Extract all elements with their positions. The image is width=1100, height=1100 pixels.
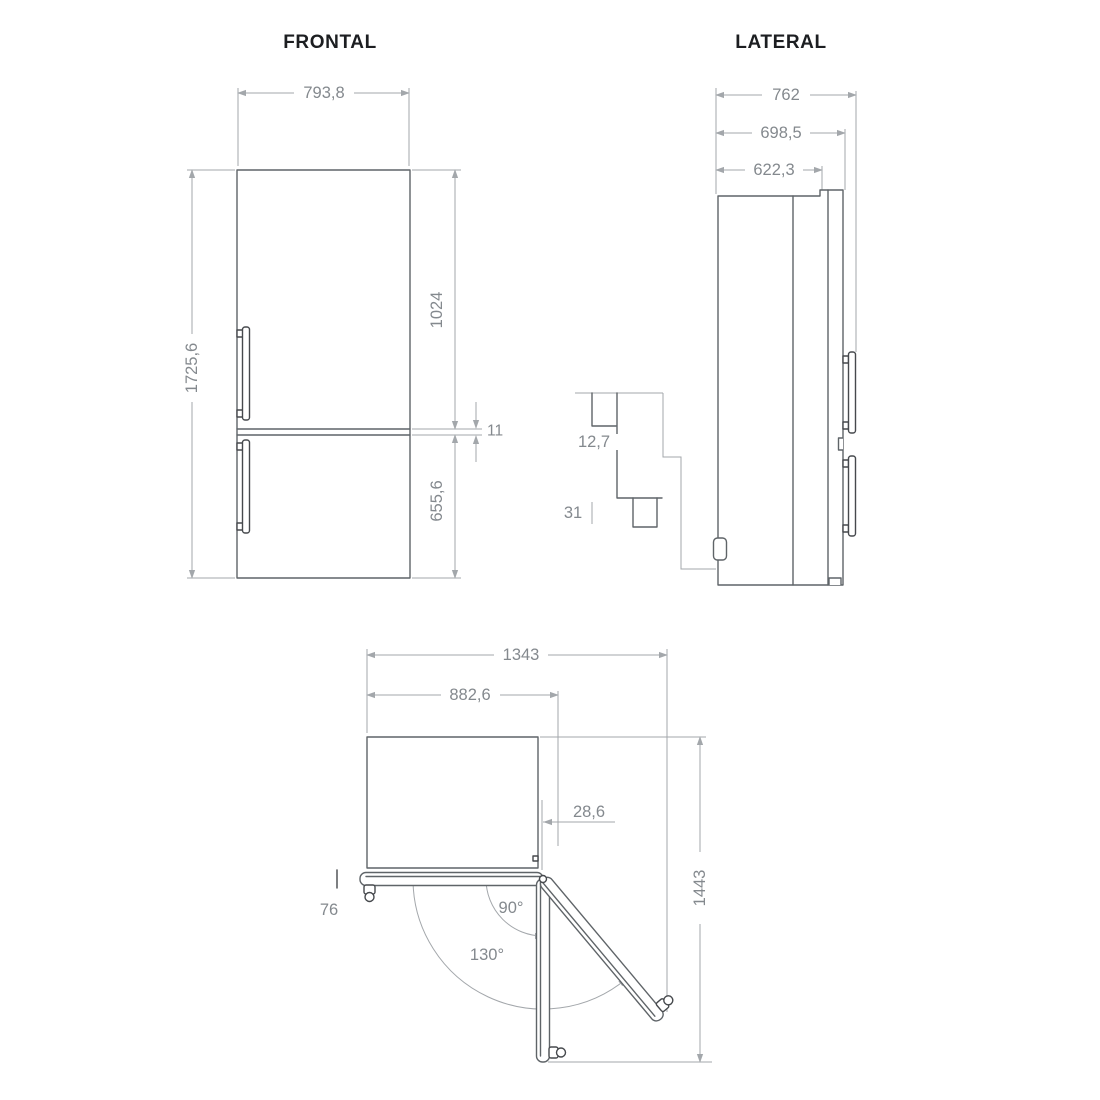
frontal-total-height-dimension: 1725,6 [183,170,235,578]
lateral-detail-callout: 12,7 31 [564,393,716,569]
top-hinge-mark [533,856,538,861]
top-body-width-label: 882,6 [449,686,490,704]
frontal-lower-height-dimension: 655,6 [412,435,482,578]
lateral-door-depth-label: 698,5 [760,124,801,142]
frontal-width-label: 793,8 [303,84,344,102]
lateral-overall-depth-label: 762 [772,86,800,104]
top-open-width-dimension: 1343 [367,646,667,664]
door-open-130 [538,865,678,1024]
lateral-bottom-notch [829,578,841,585]
lateral-cabinet-depth-label: 622,3 [753,161,794,179]
frontal-upper-height-label: 1024 [428,292,446,329]
lateral-cabinet-depth-dimension: 622,3 [716,161,822,190]
top-handle-clearance-label: 76 [320,901,338,919]
frontal-total-height-label: 1725,6 [183,343,201,393]
frontal-cabinet-body [237,170,410,578]
lateral-title: LATERAL [735,32,826,53]
angle-130-label: 130° [470,946,504,964]
lateral-upper-handle [843,352,856,433]
lateral-detail-offset-label: 12,7 [578,433,610,451]
frontal-width-dimension: 793,8 [238,84,409,166]
detail-leader-line [663,393,716,569]
top-cabinet-body [367,737,538,868]
lateral-foot [714,538,727,560]
angle-90-label: 90° [499,899,524,917]
frontal-lower-height-label: 655,6 [428,480,446,521]
lateral-lower-handle [843,456,856,536]
hinge-pin [540,876,547,883]
top-hinge-offset-label: 28,6 [573,803,605,821]
top-handle-clearance-dimension: 76 [320,870,338,919]
top-body-width-dimension: 882,6 [367,686,558,704]
top-hinge-offset-dimension: 28,6 [543,803,615,822]
frontal-upper-height-dimension: 1024 [412,170,482,429]
lateral-door-depth-dimension: 698,5 [716,124,845,190]
drawing-page: FRONTAL 793,8 1725,6 [0,0,1100,1100]
lateral-view: LATERAL 762 698,5 622,3 [564,32,856,585]
top-open-depth-label: 1443 [691,870,709,907]
frontal-gap-dimension: 11 [476,402,503,462]
technical-drawing-svg: FRONTAL 793,8 1725,6 [0,0,1100,1100]
lateral-cabinet-profile [714,190,844,585]
lateral-door-split-notch [839,438,844,450]
frontal-view: FRONTAL 793,8 1725,6 [183,32,503,578]
frontal-gap-label: 11 [487,423,503,440]
lateral-detail-foot-label: 31 [564,504,582,522]
top-view: 1343 882,6 28,6 1443 [320,646,712,1062]
door-closed [360,873,543,902]
top-open-width-label: 1343 [503,646,540,664]
top-open-depth-dimension: 1443 [691,737,709,1062]
frontal-title: FRONTAL [283,32,377,53]
